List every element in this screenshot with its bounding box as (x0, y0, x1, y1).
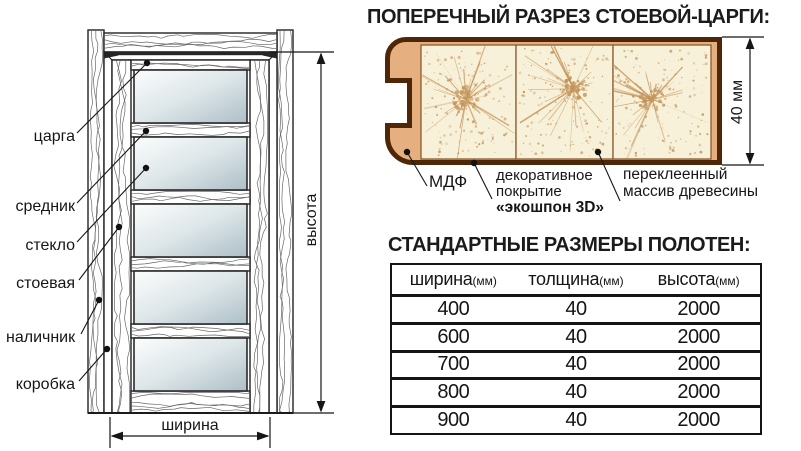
size-table-row: 800 40 2000 (392, 377, 760, 405)
height-arrow-up (317, 53, 326, 65)
size-table-cell: 900 (392, 409, 515, 432)
size-table-cell: 40 (515, 326, 638, 349)
dot-steklo (143, 165, 149, 171)
callout-core-line2: массив древесины (623, 183, 758, 200)
callout-core-line1: переклеенный (623, 166, 758, 183)
dot-stoevaya (116, 224, 122, 230)
height-arrow-down (317, 401, 326, 413)
size-table-cell: 700 (392, 353, 515, 376)
size-table-cell: 40 (515, 298, 638, 321)
size-table-cell: 600 (392, 326, 515, 349)
glass-panel-3 (134, 204, 247, 257)
dot-coating (471, 160, 477, 166)
door-drawing (88, 30, 293, 413)
door-infographic: царга средник стекло стоевая наличник ко… (0, 0, 801, 451)
glass-panel-1 (134, 70, 247, 123)
thickness-dimension-label: 40 мм (729, 57, 747, 147)
size-table-row: 400 40 2000 (392, 294, 760, 322)
dot-srednik (143, 128, 149, 134)
size-table-header: ширина(мм) толщина(мм) высота(мм) (392, 265, 760, 294)
width-arrow-right (257, 432, 270, 441)
size-table-cell: 40 (515, 353, 638, 376)
cross-section-title: ПОПЕРЕЧНЫЙ РАЗРЕЗ СТОЕВОЙ-ЦАРГИ: (367, 6, 770, 28)
callout-coating-line1: декоративное (496, 168, 604, 184)
label-steklo: стекло (6, 237, 75, 254)
size-table-cell: 40 (515, 381, 638, 404)
size-table-cell: 2000 (637, 298, 760, 321)
thickness-arrow-up (746, 38, 755, 50)
thickness-arrow-down (746, 153, 755, 165)
size-table-row: 900 40 2000 (392, 405, 760, 433)
glass-panel-5 (134, 338, 247, 391)
size-table-cell: 2000 (637, 409, 760, 432)
size-table-row: 700 40 2000 (392, 350, 760, 378)
size-table-row: 600 40 2000 (392, 322, 760, 350)
dot-core (595, 149, 601, 155)
size-table-column-header: высота(мм) (637, 269, 760, 290)
label-tsarga: царга (6, 128, 75, 145)
size-table: ширина(мм) толщина(мм) высота(мм) 400 40… (390, 263, 762, 435)
size-table-cell: 40 (515, 409, 638, 432)
dot-nalichnik (96, 297, 102, 303)
callout-coating: декоративное покрытие «экошпон 3D» (496, 168, 604, 216)
label-stoevaya: стоевая (6, 275, 75, 292)
label-nalichnik: наличник (6, 329, 75, 346)
door-rail-3 (131, 257, 250, 271)
callout-coating-line3: «экошпон 3D» (496, 200, 604, 216)
width-arrow-left (111, 432, 124, 441)
glass-panel-4 (134, 271, 247, 324)
callout-mdf: МДФ (429, 173, 467, 190)
callout-coating-line2: покрытие (496, 184, 604, 200)
size-table-title: СТАНДАРТНЫЕ РАЗМЕРЫ ПОЛОТЕН: (388, 234, 750, 256)
label-srednik: средник (6, 198, 75, 215)
size-table-cell: 2000 (637, 353, 760, 376)
glass-panel-2 (134, 137, 247, 190)
width-dimension-label: ширина (146, 417, 234, 435)
section-panel-3 (613, 45, 711, 159)
label-korobka: коробка (6, 376, 75, 393)
dot-korobka (104, 346, 110, 352)
frame-shadow-line (104, 52, 277, 55)
dot-mdf (404, 149, 410, 155)
dot-tsarga (144, 60, 150, 66)
size-table-cell: 800 (392, 381, 515, 404)
size-table-cell: 2000 (637, 381, 760, 404)
size-table-cell: 400 (392, 298, 515, 321)
size-table-column-header: ширина(мм) (392, 269, 515, 290)
callout-core: переклеенный массив древесины (623, 166, 758, 200)
size-table-cell: 2000 (637, 326, 760, 349)
size-table-column-header: толщина(мм) (515, 269, 638, 290)
leader-coating (474, 163, 492, 199)
height-dimension-label: высота (303, 175, 321, 265)
